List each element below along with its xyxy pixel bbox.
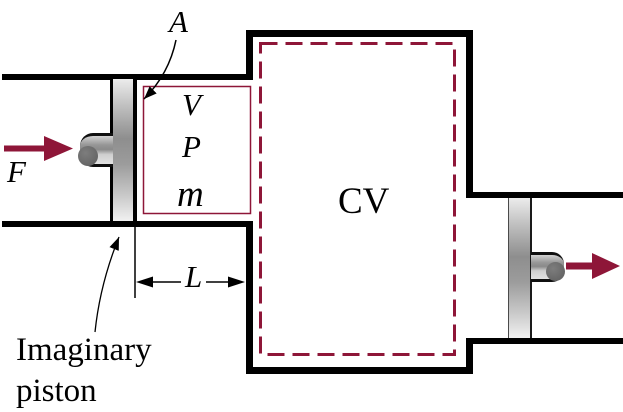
- area-leader-arrow: [144, 40, 176, 99]
- dimension-arrowhead-right: [228, 277, 245, 288]
- flow-work-diagram: A F V P m CV L Imaginary piston: [0, 0, 623, 412]
- area-label: A: [169, 6, 188, 37]
- mass-label: m: [177, 176, 204, 213]
- imaginary-piston-caption: Imaginary piston: [16, 330, 152, 412]
- imaginary-piston-leader-arrow: [95, 237, 119, 332]
- dimension-arrowhead-left: [136, 277, 153, 288]
- control-volume-label: CV: [338, 183, 389, 220]
- pressure-label: P: [182, 131, 201, 162]
- exit-arrow-head: [592, 253, 620, 279]
- volume-label: V: [182, 89, 201, 120]
- force-arrow-head: [44, 136, 73, 161]
- length-label: L: [181, 261, 206, 292]
- force-label: F: [7, 156, 26, 187]
